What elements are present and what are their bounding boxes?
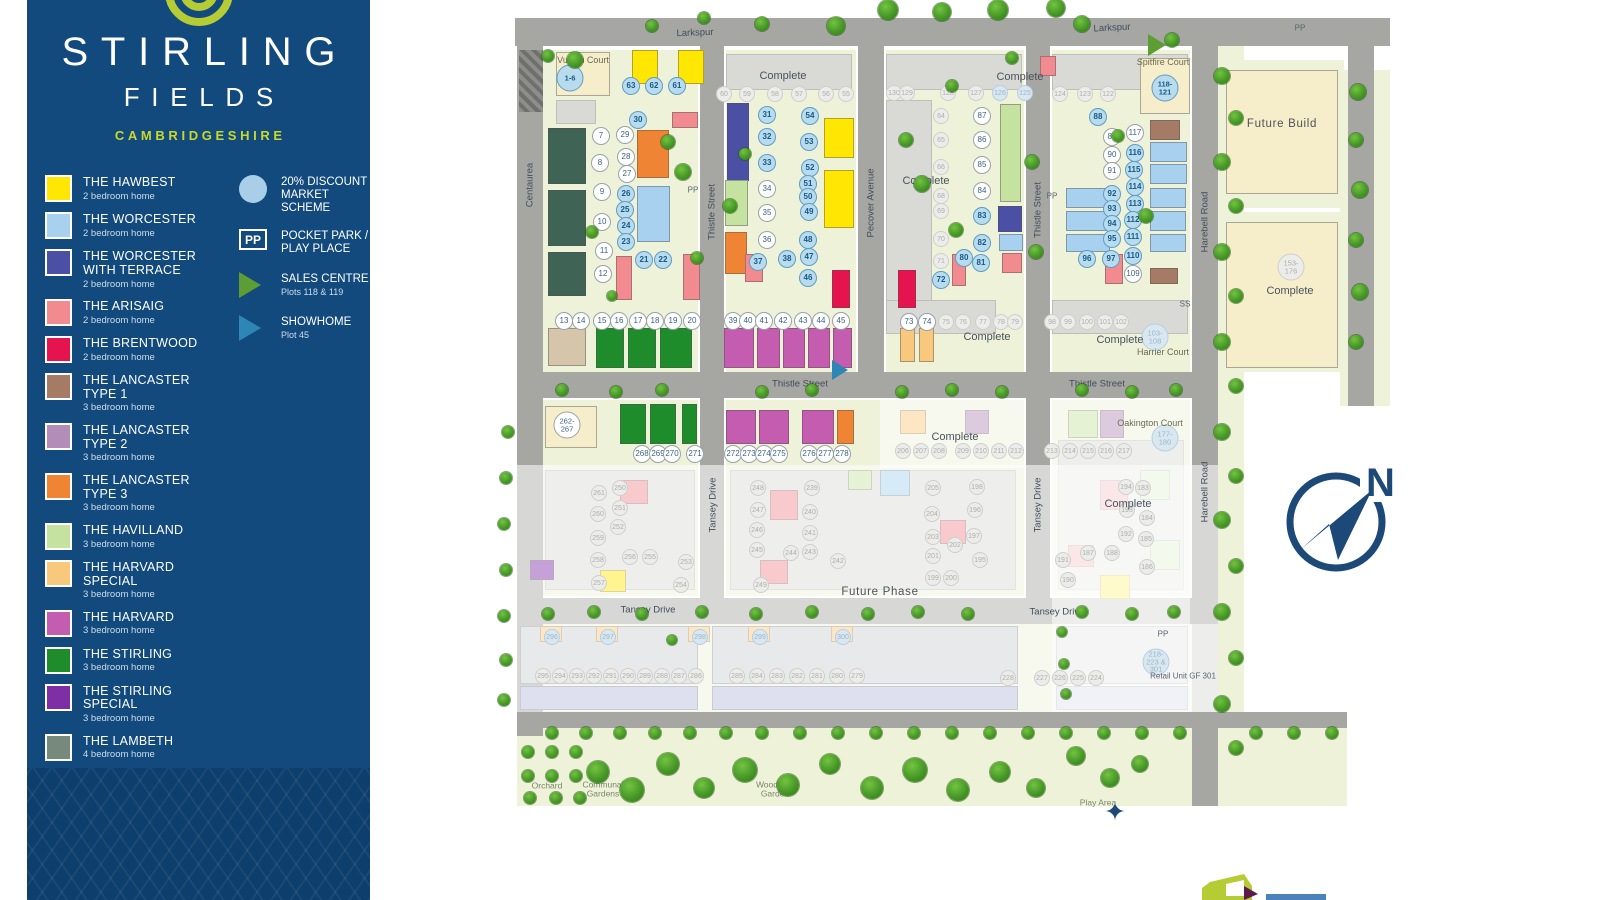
building-lambeth — [548, 252, 586, 296]
plot-circle-212[interactable]: 212 — [1008, 443, 1024, 459]
plot-circle-86[interactable]: 86 — [973, 131, 991, 149]
plot-circle-291[interactable]: 291 — [603, 668, 619, 684]
legend-item-harvard: THE HARVARD3 bedroom home — [45, 610, 220, 638]
plot-circle-75[interactable]: 75 — [938, 314, 954, 330]
building-arisaig — [672, 112, 698, 128]
plot-circle-116[interactable]: 116 — [1126, 144, 1144, 162]
plot-circle-255[interactable]: 255 — [642, 549, 658, 565]
plot-circle-46[interactable]: 46 — [799, 269, 817, 287]
plot-circle-191[interactable]: 191 — [1055, 552, 1071, 568]
plot-circle-241[interactable]: 241 — [802, 525, 818, 541]
plot-circle-99[interactable]: 99 — [1060, 314, 1076, 330]
tree-icon — [1229, 469, 1243, 483]
plot-circle-208[interactable]: 208 — [931, 443, 947, 459]
plot-circle-18[interactable]: 18 — [646, 312, 664, 330]
plot-circle-283[interactable]: 283 — [769, 668, 785, 684]
legend-desc: 3 bedroom home — [83, 540, 183, 550]
plot-circle-60[interactable]: 60 — [716, 86, 732, 102]
tree-icon — [996, 386, 1008, 398]
plot-circle-127[interactable]: 127 — [968, 85, 984, 101]
tree-icon — [1352, 284, 1368, 300]
tree-icon — [588, 606, 600, 618]
plot-circle-202[interactable]: 202 — [947, 537, 963, 553]
legend-desc: 2 bedroom home — [83, 353, 197, 363]
tree-icon — [522, 770, 534, 782]
plot-circle-27[interactable]: 27 — [618, 165, 636, 183]
legend-swatch-stirlingSpecial — [45, 684, 72, 711]
legend-swatch-lancaster1 — [45, 373, 72, 400]
plot-circle-98[interactable]: 98 — [1044, 314, 1060, 330]
building-stirling — [628, 328, 656, 368]
plot-circle-87[interactable]: 87 — [973, 107, 991, 125]
plot-circle-69[interactable]: 69 — [933, 203, 949, 219]
plot-circle-216[interactable]: 216 — [1098, 443, 1114, 459]
plot-circle-286[interactable]: 286 — [688, 668, 704, 684]
plot-circle-79[interactable]: 79 — [1007, 314, 1023, 330]
plot-circle-84[interactable]: 84 — [973, 182, 991, 200]
plot-circle-207[interactable]: 207 — [913, 443, 929, 459]
plot-circle-54[interactable]: 54 — [801, 107, 819, 125]
plot-circle-242[interactable]: 242 — [830, 553, 846, 569]
plot-circle-82[interactable]: 82 — [973, 234, 991, 252]
plot-circle-246[interactable]: 246 — [749, 522, 765, 538]
plot-circle-7[interactable]: 7 — [592, 127, 610, 145]
plot-circle-249[interactable]: 249 — [753, 577, 769, 593]
plot-circle-85[interactable]: 85 — [973, 156, 991, 174]
plot-circle-59[interactable]: 59 — [739, 86, 755, 102]
plot-circle-293[interactable]: 293 — [569, 668, 585, 684]
tree-icon — [498, 694, 510, 706]
plot-circle-117[interactable]: 117 — [1126, 124, 1144, 142]
plot-circle-97[interactable]: 97 — [1102, 250, 1120, 268]
plot-circle-22[interactable]: 22 — [654, 251, 672, 269]
tree-icon — [500, 564, 512, 576]
plot-circle-12[interactable]: 12 — [594, 265, 612, 283]
small-label: PP — [1158, 630, 1169, 639]
tree-icon — [1229, 741, 1243, 755]
plot-circle-38[interactable]: 38 — [778, 250, 796, 268]
plot-circle-271[interactable]: 271 — [686, 445, 704, 463]
tree-icon — [733, 758, 757, 782]
plot-circle-13[interactable]: 13 — [555, 312, 573, 330]
plot-circle-294[interactable]: 294 — [552, 668, 568, 684]
plot-circle-20[interactable]: 20 — [683, 312, 701, 330]
plot-circle-256[interactable]: 256 — [622, 549, 638, 565]
tree-icon — [756, 386, 768, 398]
plot-circle-261[interactable]: 261 — [591, 485, 607, 501]
plot-circle-224[interactable]: 224 — [1088, 670, 1104, 686]
complete-label: Complete — [1266, 285, 1313, 297]
tree-icon — [1352, 182, 1368, 198]
building-brentwood — [832, 270, 850, 308]
building-harvard — [802, 410, 834, 444]
plot-circle-125[interactable]: 125 — [1017, 85, 1033, 101]
legend-desc: 3 bedroom home — [83, 714, 220, 724]
legend-desc: 3 bedroom home — [83, 403, 220, 413]
plot-circle-205[interactable]: 205 — [925, 480, 941, 496]
tree-icon — [1229, 559, 1243, 573]
plot-circle-248[interactable]: 248 — [750, 480, 766, 496]
tree-icon — [498, 610, 510, 622]
building-harvard — [783, 328, 805, 368]
tree-icon — [827, 17, 845, 35]
plot-circle-72[interactable]: 72 — [932, 271, 950, 289]
plot-circle-81[interactable]: 81 — [972, 254, 990, 272]
tree-icon — [610, 386, 622, 398]
tree-icon — [1214, 696, 1230, 712]
plot-circle-226[interactable]: 226 — [1052, 670, 1068, 686]
plot-circle-215[interactable]: 215 — [1080, 443, 1096, 459]
plot-circle-53[interactable]: 53 — [800, 133, 818, 151]
tree-icon — [620, 778, 644, 802]
tree-icon — [899, 133, 913, 147]
plot-circle-300[interactable]: 300 — [835, 629, 851, 645]
tree-icon — [1214, 334, 1230, 350]
tree-icon — [1214, 68, 1230, 84]
legend-name: THE HAWBEST — [83, 176, 176, 190]
plot-circle-245[interactable]: 245 — [749, 542, 765, 558]
legend-swatch-brentwood — [45, 336, 72, 363]
plot-circle-275[interactable]: 275 — [770, 445, 788, 463]
plot-circle-277[interactable]: 277 — [816, 445, 834, 463]
tree-icon — [806, 606, 818, 618]
tree-icon — [614, 727, 626, 739]
plot-circle-36[interactable]: 36 — [758, 231, 776, 249]
plot-circle-44[interactable]: 44 — [812, 312, 830, 330]
plot-circle-203[interactable]: 203 — [925, 529, 941, 545]
plot-circle-96[interactable]: 96 — [1078, 250, 1096, 268]
plot-circle-101[interactable]: 101 — [1097, 314, 1113, 330]
plot-circle-199[interactable]: 199 — [925, 570, 941, 586]
building-arisaig — [1002, 253, 1022, 273]
legend-swatch-lancaster2 — [45, 423, 72, 450]
plot-circle-56[interactable]: 56 — [818, 86, 834, 102]
plot-circle-187[interactable]: 187 — [1080, 545, 1096, 561]
plot-circle-29[interactable]: 29 — [616, 126, 634, 144]
plot-circle-299[interactable]: 299 — [752, 629, 768, 645]
plot-circle-253[interactable]: 253 — [678, 554, 694, 570]
plot-circle-88[interactable]: 88 — [1089, 108, 1107, 126]
plot-circle-184[interactable]: 184 — [1139, 510, 1155, 526]
site-plan-page: ✦1-6636261302625242321227891011122928271… — [0, 0, 1600, 900]
tree-icon — [914, 176, 930, 192]
street-label: Tansey Drive — [621, 605, 676, 616]
plot-circle-124[interactable]: 124 — [1052, 86, 1068, 102]
legend-item-lancaster3: THE LANCASTER TYPE 33 bedroom home — [45, 473, 220, 514]
plot-circle-57[interactable]: 57 — [791, 86, 807, 102]
plot-circle-111[interactable]: 111 — [1124, 228, 1142, 246]
marker-sub: Plot 45 — [281, 330, 351, 340]
plot-circle-262-267[interactable]: 262-267 — [554, 412, 581, 439]
plot-circle-58[interactable]: 58 — [767, 86, 783, 102]
plot-circle-287[interactable]: 287 — [671, 668, 687, 684]
plot-circle-63[interactable]: 63 — [622, 77, 640, 95]
tree-icon — [1349, 133, 1363, 147]
plot-circle-123[interactable]: 123 — [1077, 86, 1093, 102]
plot-circle-192[interactable]: 192 — [1118, 526, 1134, 542]
building-harvard — [808, 328, 830, 368]
plot-circle-188[interactable]: 188 — [1104, 545, 1120, 561]
plot-circle-252[interactable]: 252 — [610, 519, 626, 535]
plot-circle-297[interactable]: 297 — [600, 629, 616, 645]
plot-circle-95[interactable]: 95 — [1103, 230, 1121, 248]
building-worcesterTerrace — [727, 103, 749, 181]
tree-icon — [1074, 16, 1090, 32]
plot-circle-217[interactable]: 217 — [1116, 443, 1132, 459]
tree-icon — [903, 758, 927, 782]
plot-circle-71[interactable]: 71 — [933, 253, 949, 269]
plot-circle-77[interactable]: 77 — [975, 314, 991, 330]
plot-circle-243[interactable]: 243 — [802, 544, 818, 560]
plot-circle-42[interactable]: 42 — [774, 312, 792, 330]
plot-circle-102[interactable]: 102 — [1113, 314, 1129, 330]
plot-circle-35[interactable]: 35 — [758, 204, 776, 222]
tree-icon — [546, 770, 558, 782]
plot-circle-183[interactable]: 183 — [1135, 480, 1151, 496]
plot-circle-281[interactable]: 281 — [809, 668, 825, 684]
tree-icon — [878, 0, 898, 20]
plot-circle-115[interactable]: 115 — [1125, 161, 1143, 179]
partner-logo — [1192, 872, 1352, 900]
plot-circle-47[interactable]: 47 — [800, 248, 818, 266]
plot-circle-70[interactable]: 70 — [933, 231, 949, 247]
plot-circle-198[interactable]: 198 — [969, 479, 985, 495]
plot-circle-100[interactable]: 100 — [1079, 314, 1095, 330]
tree-icon — [657, 753, 679, 775]
marker-name: POCKET PARK / PLAY PLACE — [281, 230, 369, 256]
legend-name: THE STIRLING — [83, 648, 172, 662]
plot-circle-240[interactable]: 240 — [802, 504, 818, 520]
small-label: PP — [688, 186, 699, 195]
plot-circle-11[interactable]: 11 — [595, 242, 613, 260]
plot-circle-289[interactable]: 289 — [637, 668, 653, 684]
tree-icon — [1025, 155, 1039, 169]
tree-icon — [1165, 33, 1179, 47]
plot-circle-109[interactable]: 109 — [1124, 265, 1142, 283]
plot-circle-30[interactable]: 30 — [629, 111, 647, 129]
plot-circle-64[interactable]: 64 — [933, 108, 949, 124]
plot-circle-201[interactable]: 201 — [925, 548, 941, 564]
plot-circle-83[interactable]: 83 — [973, 207, 991, 225]
plot-circle-129[interactable]: 129 — [899, 85, 915, 101]
plot-circle-32[interactable]: 32 — [758, 128, 776, 146]
plot-circle-209[interactable]: 209 — [955, 443, 971, 459]
future-phase-overlay — [1052, 624, 1218, 712]
plot-circle-62[interactable]: 62 — [645, 77, 663, 95]
garden-label: Orchard — [518, 781, 576, 790]
legend-name: THE ARISAIG — [83, 300, 164, 314]
plot-circle-279[interactable]: 279 — [849, 668, 865, 684]
tree-icon — [570, 770, 582, 782]
plot-circle-76[interactable]: 76 — [955, 314, 971, 330]
plot-circle-23[interactable]: 23 — [617, 233, 635, 251]
plot-circle-254[interactable]: 254 — [673, 577, 689, 593]
legend-name: THE WORCESTER WITH TERRACE — [83, 250, 220, 278]
plot-circle-55[interactable]: 55 — [838, 86, 854, 102]
legend-item-hawbest: THE HAWBEST2 bedroom home — [45, 175, 220, 203]
street-label: Thistle Street — [772, 379, 828, 390]
plot-circle-280[interactable]: 280 — [829, 668, 845, 684]
plot-circle-8[interactable]: 8 — [591, 154, 609, 172]
plot-circle-177-180[interactable]: 177-180 — [1152, 425, 1179, 452]
plot-circle-66[interactable]: 66 — [933, 159, 949, 175]
plot-circle-250[interactable]: 250 — [612, 480, 628, 496]
plot-circle-37[interactable]: 37 — [749, 253, 767, 271]
tree-icon — [806, 384, 818, 396]
tree-icon — [861, 777, 883, 799]
marker-name: SHOWHOME — [281, 316, 351, 329]
plot-circle-213[interactable]: 213 — [1044, 443, 1060, 459]
sales-centre-icon — [239, 272, 261, 298]
plot-circle-185[interactable]: 185 — [1138, 531, 1154, 547]
plot-circle-244[interactable]: 244 — [783, 545, 799, 561]
tree-icon — [1126, 386, 1138, 398]
plot-circle-186[interactable]: 186 — [1139, 559, 1155, 575]
legend-desc: 3 bedroom home — [83, 663, 172, 673]
plot-circle-80[interactable]: 80 — [955, 249, 973, 267]
plot-circle-195[interactable]: 195 — [972, 552, 988, 568]
plot-circle-21[interactable]: 21 — [635, 251, 653, 269]
tree-icon — [1229, 199, 1243, 213]
plot-circle-298[interactable]: 298 — [692, 629, 708, 645]
plot-circle-251[interactable]: 251 — [612, 500, 628, 516]
plot-circle-247[interactable]: 247 — [750, 502, 766, 518]
tree-icon — [698, 12, 710, 24]
tree-icon — [524, 792, 536, 804]
plot-circle-285[interactable]: 285 — [729, 668, 745, 684]
plot-circle-197[interactable]: 197 — [966, 528, 982, 544]
building-havilland — [1000, 104, 1021, 202]
plot-circle-204[interactable]: 204 — [924, 506, 940, 522]
plot-circle-19[interactable]: 19 — [664, 312, 682, 330]
tree-icon — [1350, 84, 1366, 100]
tree-icon — [636, 608, 648, 620]
plot-circle-190[interactable]: 190 — [1060, 572, 1076, 588]
plot-circle-118-121[interactable]: 118-121 — [1152, 75, 1179, 102]
plot-circle-74[interactable]: 74 — [918, 313, 936, 331]
tree-icon — [1057, 627, 1067, 637]
tree-icon — [542, 50, 554, 62]
marker-item-tri-green: SALES CENTREPlots 118 & 119 — [239, 272, 369, 302]
plot-circle-196[interactable]: 196 — [967, 502, 983, 518]
street-label: Centaurea — [525, 163, 536, 207]
plot-circle-257[interactable]: 257 — [591, 575, 607, 591]
plot-circle-15[interactable]: 15 — [593, 312, 611, 330]
legend-name: THE HAVILLAND — [83, 524, 183, 538]
complete-label: Complete — [931, 431, 978, 443]
legend-swatch-harvardSpecial — [45, 560, 72, 587]
legend-desc: 3 bedroom home — [83, 590, 220, 600]
plot-circle-31[interactable]: 31 — [758, 106, 776, 124]
plot-circle-259[interactable]: 259 — [590, 530, 606, 546]
tree-icon — [546, 727, 558, 739]
plot-circle-228[interactable]: 228 — [1000, 670, 1016, 686]
plot-circle-258[interactable]: 258 — [590, 552, 606, 568]
complete-label: Complete — [759, 70, 806, 82]
plot-circle-239[interactable]: 239 — [804, 480, 820, 496]
plot-circle-28[interactable]: 28 — [617, 148, 635, 166]
legend-markers: 20% DISCOUNT MARKET SCHEMEPPPOCKET PARK … — [239, 175, 369, 358]
plot-circle-61[interactable]: 61 — [668, 77, 686, 95]
plot-circle-16[interactable]: 16 — [610, 312, 628, 330]
plot-circle-296[interactable]: 296 — [544, 629, 560, 645]
tree-icon — [498, 518, 510, 530]
complete-building — [556, 100, 596, 124]
plot-circle-91[interactable]: 91 — [1103, 162, 1121, 180]
plot-circle-41[interactable]: 41 — [755, 312, 773, 330]
plot-circle-122[interactable]: 122 — [1100, 86, 1116, 102]
plot-circle-49[interactable]: 49 — [800, 203, 818, 221]
plot-circle-126[interactable]: 126 — [992, 85, 1008, 101]
plot-circle-214[interactable]: 214 — [1062, 443, 1078, 459]
plot-circle-295[interactable]: 295 — [535, 668, 551, 684]
legend-name: THE LANCASTER TYPE 2 — [83, 424, 220, 452]
plot-circle-210[interactable]: 210 — [973, 443, 989, 459]
building-harvardSpecial — [919, 328, 934, 362]
plot-circle-292[interactable]: 292 — [586, 668, 602, 684]
legend-swatch-havilland — [45, 523, 72, 550]
plot-circle-110[interactable]: 110 — [1124, 247, 1142, 265]
plot-circle-260[interactable]: 260 — [590, 506, 606, 522]
plot-circle-278[interactable]: 278 — [833, 445, 851, 463]
tree-icon — [646, 20, 658, 32]
legend-swatch-stirling — [45, 647, 72, 674]
plot-circle-153-176[interactable]: 153-176 — [1278, 254, 1305, 281]
legend-name: THE WORCESTER — [83, 213, 196, 227]
plot-circle-33[interactable]: 33 — [758, 154, 776, 172]
plot-circle-43[interactable]: 43 — [794, 312, 812, 330]
legend-item-lambeth: THE LAMBETH4 bedroom home — [45, 734, 220, 762]
plot-circle-282[interactable]: 282 — [789, 668, 805, 684]
plot-circle-225[interactable]: 225 — [1070, 670, 1086, 686]
plot-circle-290[interactable]: 290 — [620, 668, 636, 684]
legend-desc: 2 bedroom home — [83, 280, 220, 290]
building-lancaster1 — [1150, 268, 1178, 284]
legend-name: THE LAMBETH — [83, 735, 173, 749]
tree-icon — [1168, 606, 1180, 618]
plot-circle-14[interactable]: 14 — [572, 312, 590, 330]
small-label: Retail Unit GF 301 — [1150, 672, 1216, 681]
street-label: Thistle Street — [1033, 182, 1044, 238]
plot-circle-73[interactable]: 73 — [900, 313, 918, 331]
legend-item-harvardSpecial: THE HARVARD SPECIAL3 bedroom home — [45, 560, 220, 601]
plot-circle-65[interactable]: 65 — [933, 132, 949, 148]
tree-icon — [946, 80, 958, 92]
plot-circle-206[interactable]: 206 — [895, 443, 911, 459]
plot-circle-270[interactable]: 270 — [663, 445, 681, 463]
plot-circle-114[interactable]: 114 — [1126, 178, 1144, 196]
plot-circle-288[interactable]: 288 — [654, 668, 670, 684]
plot-circle-48[interactable]: 48 — [799, 231, 817, 249]
plot-circle-9[interactable]: 9 — [593, 183, 611, 201]
plot-circle-211[interactable]: 211 — [991, 443, 1007, 459]
plot-circle-227[interactable]: 227 — [1034, 670, 1050, 686]
plot-circle-17[interactable]: 17 — [629, 312, 647, 330]
legend-item-arisaig: THE ARISAIG2 bedroom home — [45, 299, 220, 327]
legend-swatch-harvard — [45, 610, 72, 637]
plot-circle-45[interactable]: 45 — [832, 312, 850, 330]
plot-circle-68[interactable]: 68 — [933, 188, 949, 204]
building-lambeth — [548, 190, 586, 246]
tree-icon — [1076, 384, 1088, 396]
plot-circle-194[interactable]: 194 — [1118, 479, 1134, 495]
tree-icon — [988, 0, 1008, 20]
legend-swatch-worcesterTerrace — [45, 249, 72, 276]
plot-circle-284[interactable]: 284 — [749, 668, 765, 684]
plot-circle-1-6[interactable]: 1-6 — [557, 65, 584, 92]
plot-circle-34[interactable]: 34 — [758, 180, 776, 198]
plot-circle-200[interactable]: 200 — [943, 570, 959, 586]
